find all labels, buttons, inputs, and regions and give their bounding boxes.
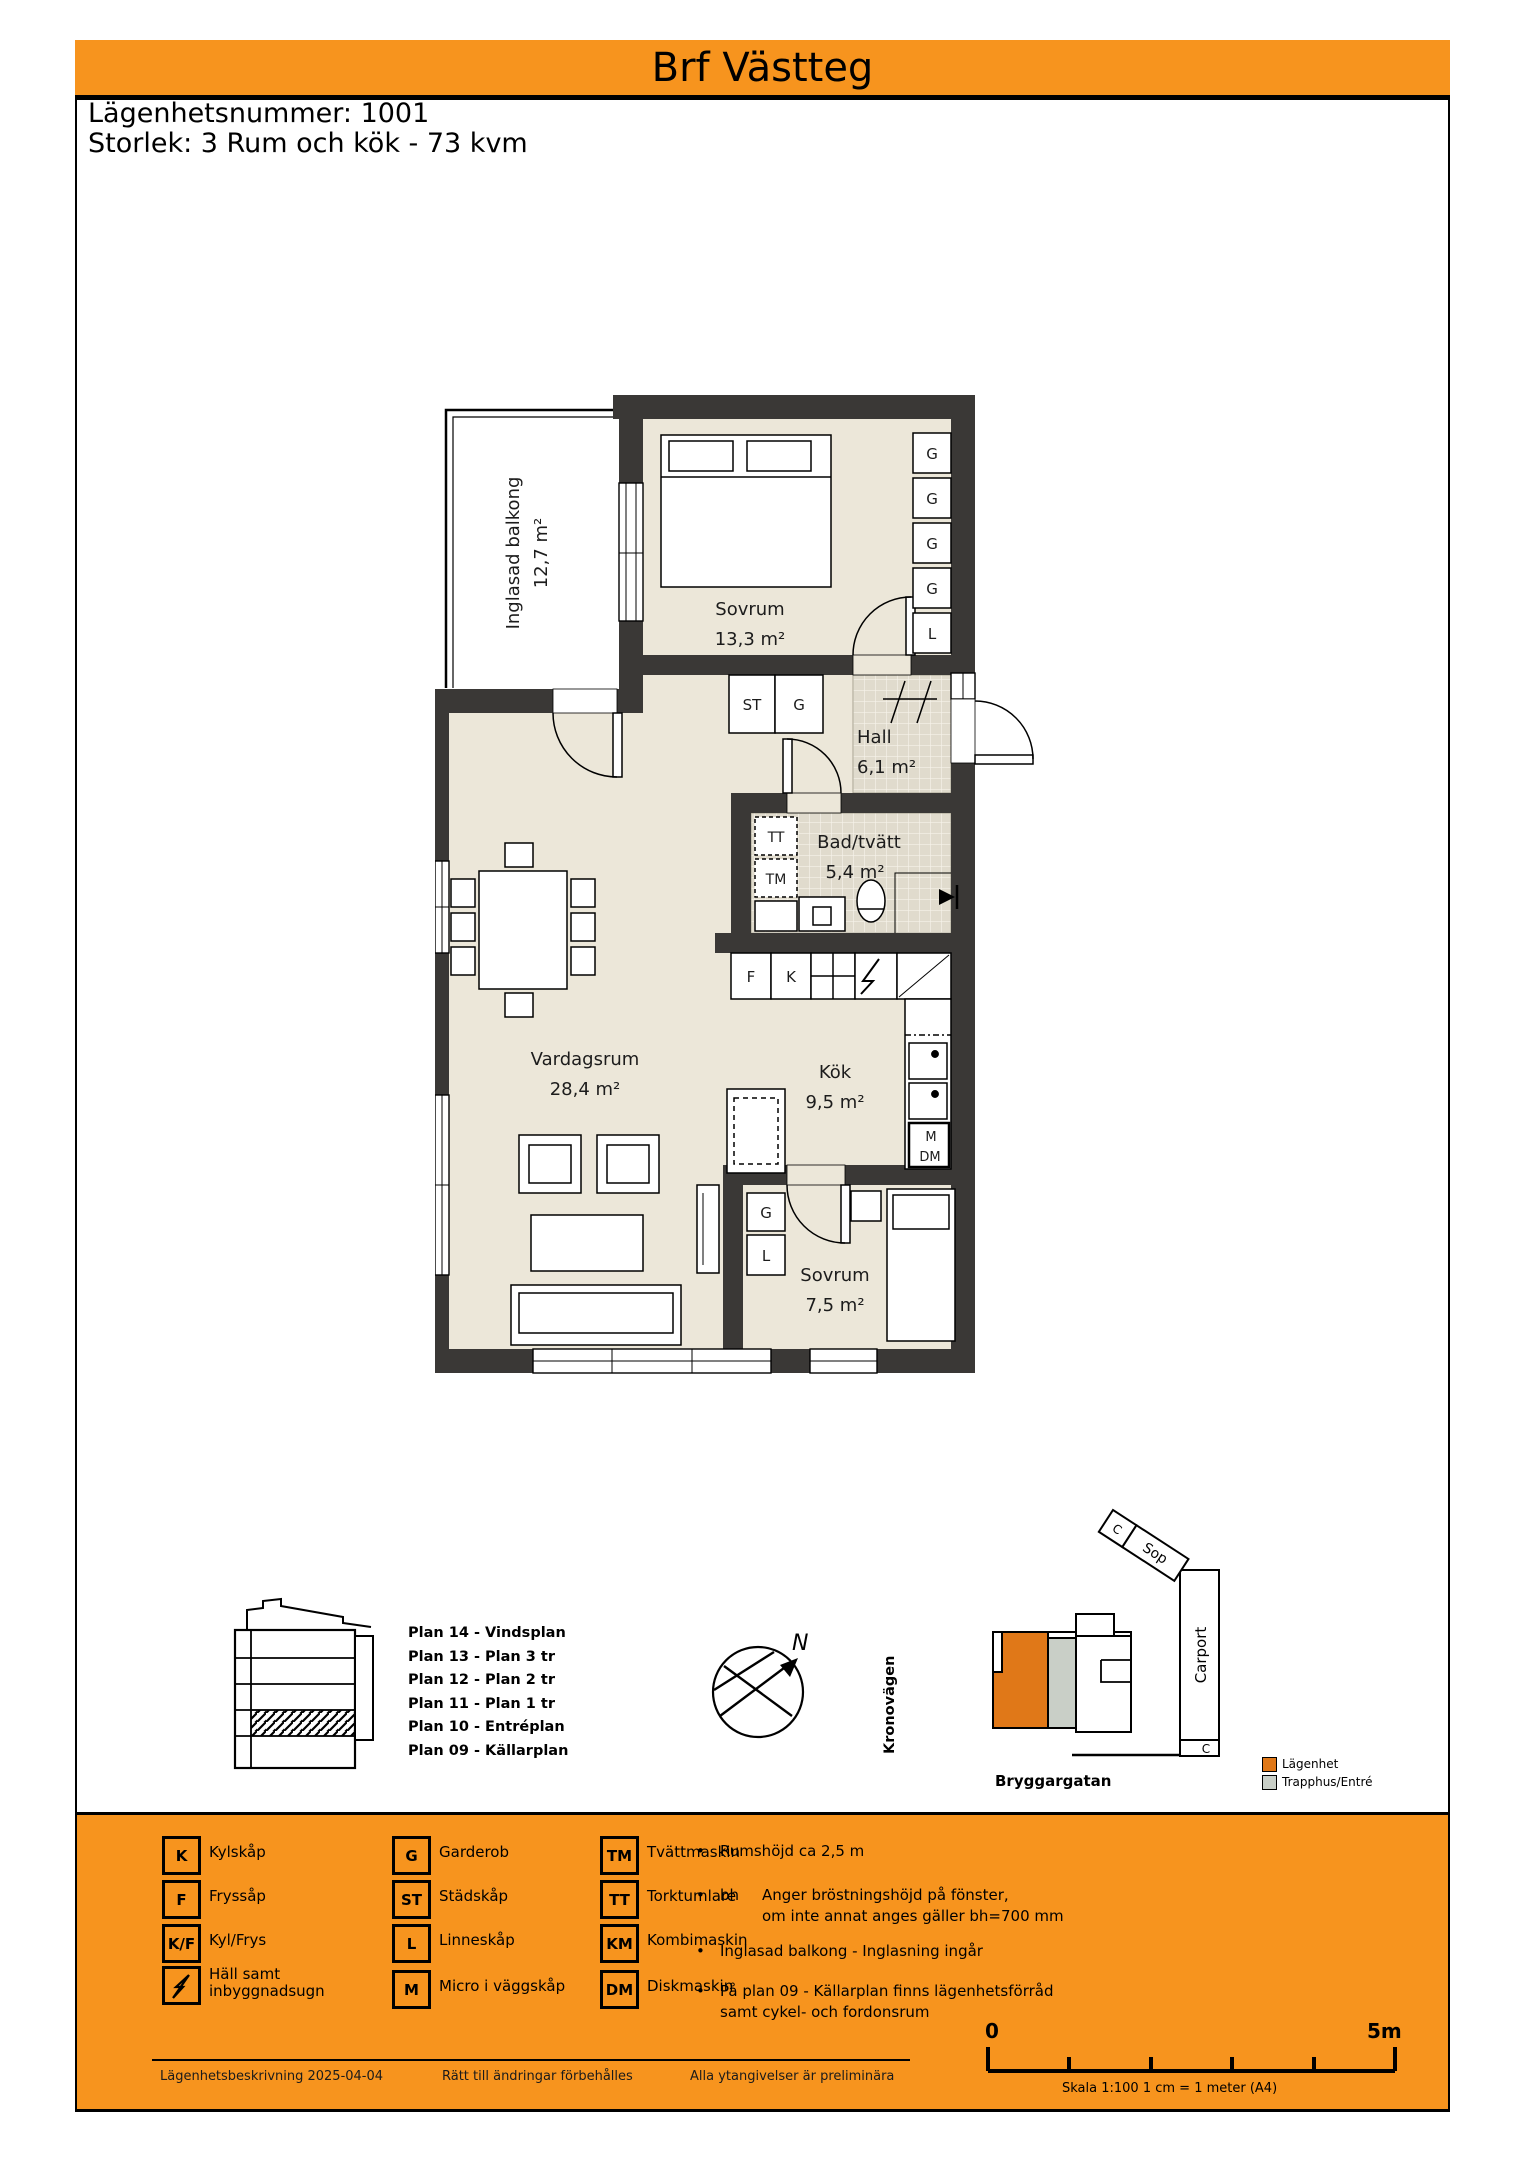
legend-label-fryssap: Fryssåp [209,1888,266,1905]
wardrobe-g3: G [926,535,938,553]
page-title: Brf Västteg [652,48,874,88]
plan-list-item: Plan 13 - Plan 3 tr [408,1646,568,1670]
plan-list-item: Plan 12 - Plan 2 tr [408,1669,568,1693]
plan-list: Plan 14 - Vindsplan Plan 13 - Plan 3 tr … [408,1622,568,1763]
plan-list-item: Plan 10 - Entréplan [408,1716,568,1740]
note-room-height: • Rumshöjd ca 2,5 m [720,1841,864,1862]
note-storage: • På plan 09 - Källarplan finns lägenhet… [720,1981,1053,2023]
cabinet-f: F [747,968,756,986]
wardrobe-g1: G [926,445,938,463]
bedroom2-g: G [760,1204,772,1222]
compass-icon: N [700,1628,830,1748]
document-header: Brf Västteg [75,40,1450,100]
wardrobe-l: L [928,625,937,643]
room-label-hall-area: 6,1 m² [857,757,916,778]
legend-label-micro: Micro i väggskåp [439,1978,565,1995]
legend-box-m: M [392,1970,431,2009]
scale-end: 5m [1367,2019,1402,2043]
compass-n-label: N [792,1631,808,1656]
appliance-tm: TM [765,872,787,888]
apartment-size: Storlek: 3 Rum och kök - 73 kvm [88,128,528,159]
footer-prelim: Alla ytangivelser är preliminära [690,2069,894,2084]
room-label-bedroom1-name: Sovrum [715,599,784,620]
plan-list-item: Plan 09 - Källarplan [408,1740,568,1764]
lightning-icon [169,1973,195,1999]
room-label-balcony-area: 12,7 m² [531,518,552,589]
legend-label-garderob: Garderob [439,1844,509,1861]
legend-label-kylfrys: Kyl/Frys [209,1932,266,1949]
site-apartment-highlight [993,1632,1048,1728]
street-label-bryggargatan: Bryggargatan [995,1772,1111,1790]
room-label-bedroom2-area: 7,5 m² [805,1295,864,1316]
legend-box-kf: K/F [162,1924,201,1963]
room-label-kitchen-area: 9,5 m² [805,1092,864,1113]
legend-label-linneskap: Linneskåp [439,1932,515,1949]
legend-label-stadskap: Städskåp [439,1888,508,1905]
scale-caption: Skala 1:100 1 cm = 1 meter (A4) [1062,2081,1277,2096]
legend-box-km: KM [600,1924,639,1963]
legend-box-g: G [392,1836,431,1875]
site-stairwell [1048,1638,1076,1728]
legend-box-tm: TM [600,1836,639,1875]
site-legend-apartment-label: Lägenhet [1282,1757,1338,1771]
legend-box-l: L [392,1924,431,1963]
footer-date: Lägenhetsbeskrivning 2025-04-04 [160,2069,383,2084]
appliance-tt: TT [767,830,785,846]
wardrobe-g2: G [926,490,938,508]
garbage-building: C Sop [1099,1510,1189,1581]
room-label-bath-name: Bad/tvätt [817,832,901,853]
room-label-hall-name: Hall [857,727,892,748]
legend-box-st: ST [392,1880,431,1919]
legend-box-tt: TT [600,1880,639,1919]
cabinet-k: K [786,968,797,986]
room-label-bath-area: 5,4 m² [825,862,884,883]
legend-label-hall: Häll samt inbyggnadsugn [209,1966,325,2000]
footer-divider [152,2059,910,2061]
street-label-kronovagen: Kronovägen [882,1656,898,1754]
legend-box-k: K [162,1836,201,1875]
closet-st: ST [743,696,763,714]
floor-plan: Inglasad balkong 12,7 m² Sovrum 13,3 m² … [435,393,1055,1383]
footer-notice: Rätt till ändringar förbehålles [442,2069,633,2084]
closet-g: G [793,696,805,714]
legend-label-kylskap: Kylskåp [209,1844,266,1861]
stairwell-swatch [1262,1775,1277,1790]
room-label-bedroom2-name: Sovrum [800,1265,869,1286]
plan-list-item: Plan 11 - Plan 1 tr [408,1693,568,1717]
site-plan: Carport C C Sop [985,1502,1235,1774]
room-label-living-area: 28,4 m² [550,1079,621,1100]
room-label-living-name: Vardagsrum [531,1049,640,1070]
site-legend-apartment: Lägenhet [1262,1756,1338,1772]
plan-list-item: Plan 14 - Vindsplan [408,1622,568,1646]
site-legend-stairwell-label: Trapphus/Entré [1282,1775,1373,1789]
carport-c-label: C [1202,1742,1210,1756]
legend-box-hob [162,1966,201,2005]
scale-bar [985,2043,1405,2077]
apartment-swatch [1262,1757,1277,1772]
legend-box-dm: DM [600,1970,639,2009]
building-section [185,1596,415,1781]
appliance-dm: DM [919,1150,940,1165]
bedroom2-l: L [762,1247,771,1265]
note-bh: • bhAnger bröstningshöjd på fönster, om … [720,1885,1064,1927]
carport-label: Carport [1192,1627,1210,1684]
apartment-number: Lägenhetsnummer: 1001 [88,98,429,129]
legend-panel: K Kylskåp F Fryssåp K/F Kyl/Frys Häll sa… [75,1812,1450,2111]
legend-box-f: F [162,1880,201,1919]
document-page: Brf Västteg Lägenhetsnummer: 1001 Storle… [0,0,1526,2160]
note-balcony: • Inglasad balkong - Inglasning ingår [720,1941,983,1962]
room-label-kitchen-name: Kök [819,1062,852,1083]
room-label-bedroom1-area: 13,3 m² [715,629,786,650]
site-legend-stairwell: Trapphus/Entré [1262,1774,1373,1790]
appliance-m: M [925,1130,936,1145]
wardrobe-g4: G [926,580,938,598]
room-label-balcony-name: Inglasad balkong [503,477,524,630]
scale-start: 0 [985,2019,999,2043]
